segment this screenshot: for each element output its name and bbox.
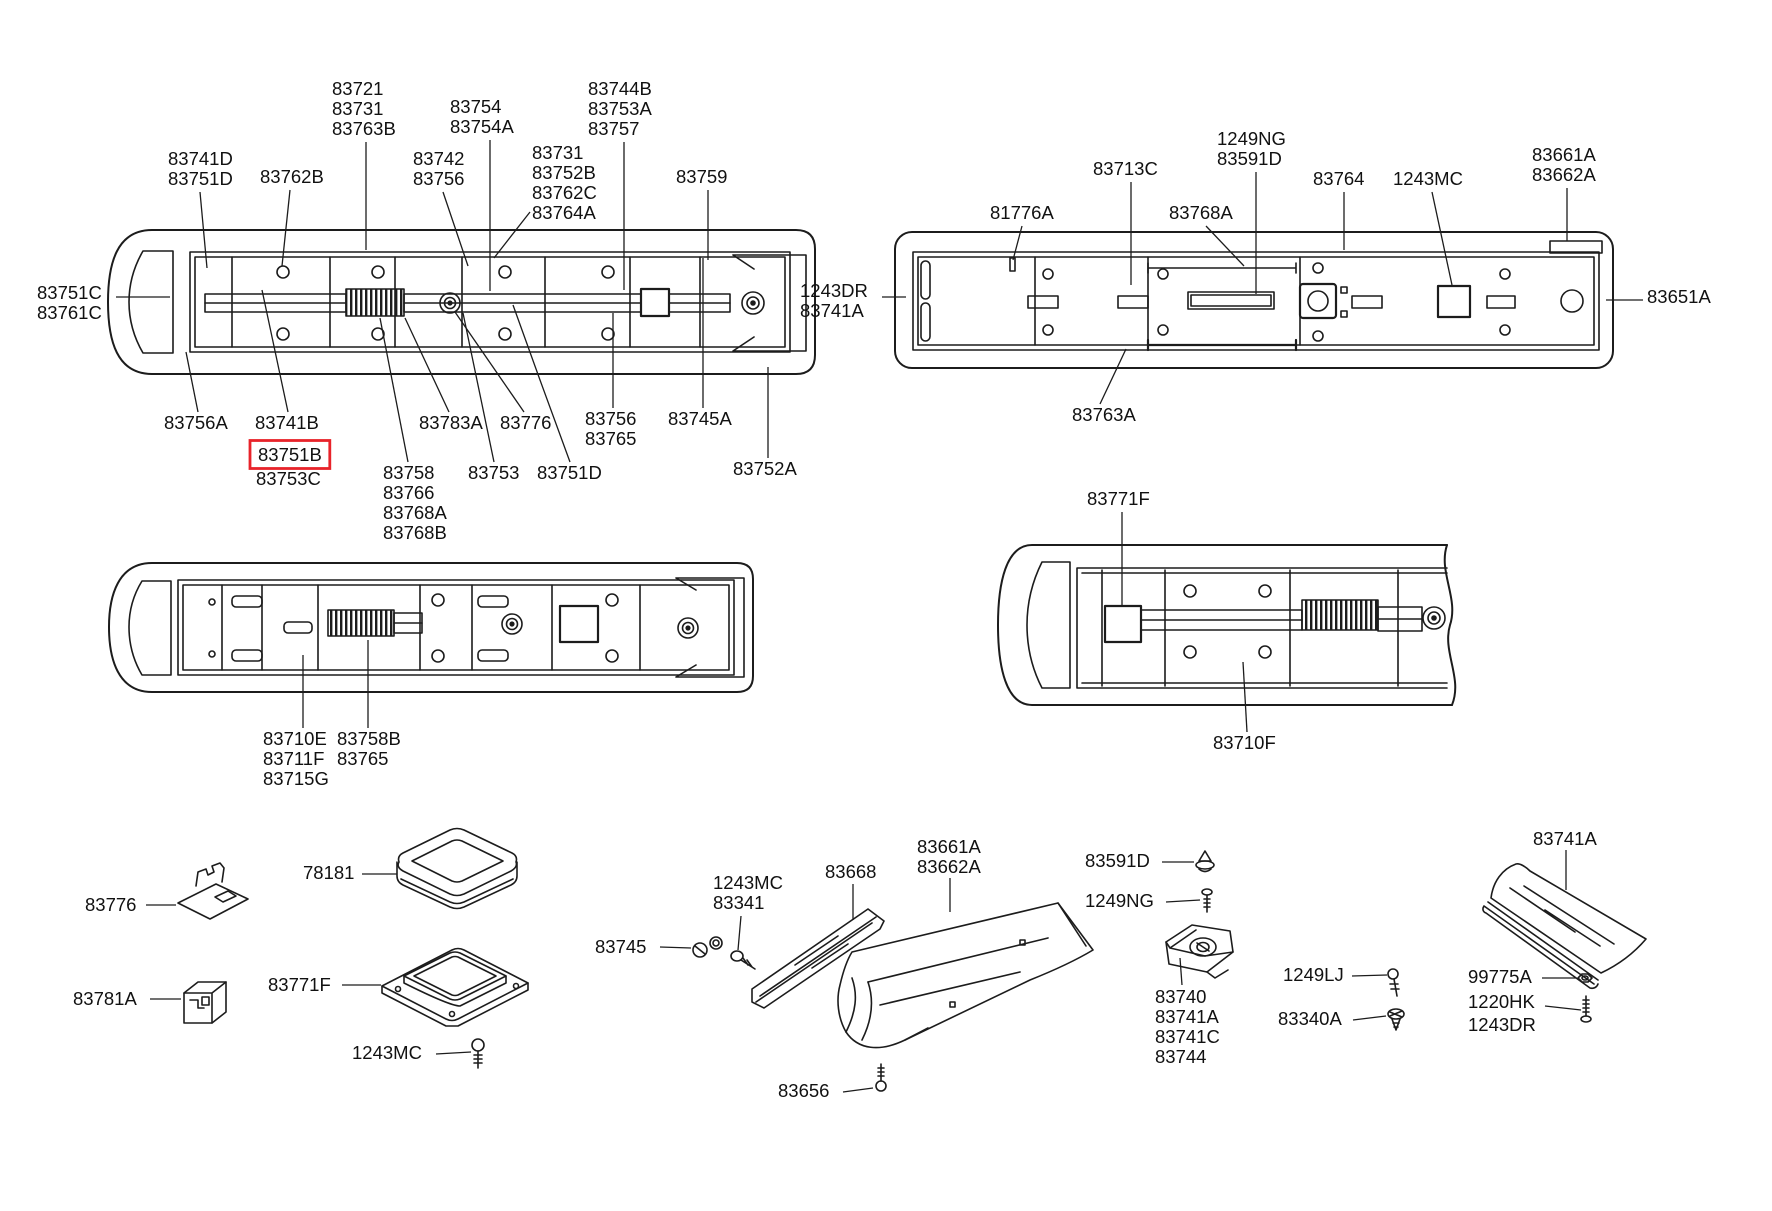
leader-tl-83731-col	[494, 212, 530, 258]
svg-text:1243DR: 1243DR	[1468, 1014, 1536, 1035]
leader-b-1243mc-83341	[738, 916, 741, 950]
part-label-b-83740-col: 8374083741A83741C83744	[1155, 986, 1220, 1067]
part-label-b-83661a-83662a: 83661A83662A	[917, 836, 981, 877]
svg-text:1220HK: 1220HK	[1468, 991, 1536, 1012]
part-1249lj-screw	[1388, 969, 1399, 996]
leader-b-83656	[843, 1088, 873, 1092]
part-label-tl-83741b: 83741B	[255, 412, 319, 433]
part-label-b-83781a: 83781A	[73, 988, 137, 1009]
svg-text:1243MC: 1243MC	[352, 1042, 422, 1063]
part-label-tr-83763a: 83763A	[1072, 404, 1136, 425]
part-label-tl-83753c: 83753C	[256, 468, 321, 489]
svg-text:83651A: 83651A	[1647, 286, 1711, 307]
svg-text:83771F: 83771F	[1087, 488, 1150, 509]
part-83776-bracket	[178, 863, 248, 919]
part-label-tr-83661a-83662a: 83661A83662A	[1532, 144, 1596, 185]
svg-text:83741B: 83741B	[255, 412, 319, 433]
part-label-b-99775a: 99775A	[1468, 966, 1532, 987]
part-label-tl-83753: 83753	[468, 462, 519, 483]
assembly-middle-left-artwork	[109, 563, 753, 692]
part-83745-clips	[693, 937, 722, 957]
part-label-ml-83758b-col: 83758B83765	[337, 728, 401, 769]
svg-text:83776: 83776	[85, 894, 136, 915]
part-label-ml-83710e-col: 83710E83711F83715G	[263, 728, 329, 789]
part-label-mr-83771f: 83771F	[1087, 488, 1150, 509]
svg-text:8374083741A83741C83744: 8374083741A83741C83744	[1155, 986, 1220, 1067]
part-1249ng-screw	[1202, 889, 1212, 912]
part-label-b-83656: 83656	[778, 1080, 829, 1101]
parts-diagram-page: 83741D83751D83762B837218373183763B837548…	[0, 0, 1772, 1211]
part-83341-screw	[731, 951, 755, 969]
part-label-tl-83754-col: 8375483754A	[450, 96, 514, 137]
part-label-b-1249lj: 1249LJ	[1283, 964, 1344, 985]
assembly-top-right-artwork	[895, 232, 1613, 368]
assembly-middle-right-artwork	[998, 545, 1455, 705]
svg-text:83661A83662A: 83661A83662A	[917, 836, 981, 877]
leader-tl-83783a	[405, 318, 449, 412]
part-label-b-1220hk: 1220HK	[1468, 991, 1536, 1012]
assembly-top-left-artwork	[108, 230, 815, 374]
leader-tl-83756a	[186, 352, 198, 412]
part-label-tr-83651a: 83651A	[1647, 286, 1711, 307]
part-label-tl-83756-83765: 8375683765	[585, 408, 636, 449]
svg-text:83661A83662A: 83661A83662A	[1532, 144, 1596, 185]
part-83781a-box	[184, 982, 226, 1023]
part-label-tr-83764: 83764	[1313, 168, 1364, 189]
part-label-b-83668: 83668	[825, 861, 876, 882]
svg-text:83340A: 83340A	[1278, 1008, 1342, 1029]
svg-text:83781A: 83781A	[73, 988, 137, 1009]
svg-text:1249NG: 1249NG	[1085, 890, 1154, 911]
svg-text:78181: 78181	[303, 862, 354, 883]
svg-text:83710E83711F83715G: 83710E83711F83715G	[263, 728, 329, 789]
svg-text:83744B83753A83757: 83744B83753A83757	[588, 78, 652, 139]
part-label-tl-83759: 83759	[676, 166, 727, 187]
svg-text:83710F: 83710F	[1213, 732, 1276, 753]
part-83771f-plate	[382, 949, 528, 1027]
part-1220hk-screw	[1581, 996, 1591, 1022]
part-label-b-83776: 83776	[85, 894, 136, 915]
svg-text:83745: 83745	[595, 936, 646, 957]
part-label-tr-83768a: 83768A	[1169, 202, 1233, 223]
svg-text:83668: 83668	[825, 861, 876, 882]
part-label-b-1249ng: 1249NG	[1085, 890, 1154, 911]
leader-b-1249lj	[1352, 975, 1387, 976]
svg-text:83741D83751D: 83741D83751D	[168, 148, 233, 189]
part-label-b-83771f: 83771F	[268, 974, 331, 995]
part-label-mr-83710f: 83710F	[1213, 732, 1276, 753]
part-label-tl-83731-col: 8373183752B83762C83764A	[532, 142, 597, 223]
svg-text:83768A: 83768A	[1169, 202, 1233, 223]
svg-text:83764: 83764	[1313, 168, 1364, 189]
svg-text:83762B: 83762B	[260, 166, 324, 187]
leader-tl-83762b	[282, 190, 290, 266]
svg-text:83783A: 83783A	[419, 412, 483, 433]
svg-text:99775A: 99775A	[1468, 966, 1532, 987]
leader-b-83340a	[1353, 1016, 1386, 1020]
part-1243mc-screw	[472, 1039, 484, 1068]
leader-b-1243mc	[436, 1052, 471, 1054]
svg-text:83753C: 83753C	[256, 468, 321, 489]
part-label-tl-83742-col: 8374283756	[413, 148, 464, 189]
leader-b-1249ng	[1166, 900, 1200, 902]
part-label-tl-83762b: 83762B	[260, 166, 324, 187]
svg-text:1249NG83591D: 1249NG83591D	[1217, 128, 1286, 169]
svg-text:83752A: 83752A	[733, 458, 797, 479]
part-label-tl-83751d-bot: 83751D	[537, 462, 602, 483]
svg-text:83763A: 83763A	[1072, 404, 1136, 425]
svg-text:8373183752B83762C83764A: 8373183752B83762C83764A	[532, 142, 597, 223]
part-label-tr-1243mc: 1243MC	[1393, 168, 1463, 189]
part-label-tl-83752a: 83752A	[733, 458, 797, 479]
leader-b-83740-col	[1180, 958, 1182, 985]
part-label-tl-83776: 83776	[500, 412, 551, 433]
part-label-b-83340a: 83340A	[1278, 1008, 1342, 1029]
leader-tr-83763a	[1100, 349, 1126, 404]
svg-text:83753: 83753	[468, 462, 519, 483]
svg-text:83756A: 83756A	[164, 412, 228, 433]
part-label-tl-83756a: 83756A	[164, 412, 228, 433]
leader-b-1220hk	[1545, 1006, 1581, 1010]
svg-text:1243MC83341: 1243MC83341	[713, 872, 783, 913]
part-label-b-78181: 78181	[303, 862, 354, 883]
svg-text:1249LJ: 1249LJ	[1283, 964, 1344, 985]
part-83656-screw	[876, 1064, 886, 1091]
svg-text:837218373183763B: 837218373183763B	[332, 78, 396, 139]
part-label-b-83745: 83745	[595, 936, 646, 957]
part-83661a-cover	[838, 903, 1093, 1048]
svg-text:83656: 83656	[778, 1080, 829, 1101]
part-label-b-1243dr: 1243DR	[1468, 1014, 1536, 1035]
part-label-tl-83751b: 83751B	[250, 441, 330, 469]
part-83340a-clip	[1388, 1009, 1404, 1030]
svg-text:83741A: 83741A	[1533, 828, 1597, 849]
svg-text:8374283756: 8374283756	[413, 148, 464, 189]
svg-text:83591D: 83591D	[1085, 850, 1150, 871]
part-label-tr-83713c: 83713C	[1093, 158, 1158, 179]
svg-text:83745A: 83745A	[668, 408, 732, 429]
part-label-b-83741a: 83741A	[1533, 828, 1597, 849]
part-label-tl-83751c-83761c: 83751C83761C	[37, 282, 102, 323]
leader-tl-83741b	[262, 290, 288, 412]
part-label-b-1243mc: 1243MC	[352, 1042, 422, 1063]
svg-text:8375683765: 8375683765	[585, 408, 636, 449]
svg-text:83758B83765: 83758B83765	[337, 728, 401, 769]
svg-text:837588376683768A83768B: 837588376683768A83768B	[383, 462, 447, 543]
svg-text:1243MC: 1243MC	[1393, 168, 1463, 189]
part-label-tr-81776a: 81776A	[990, 202, 1054, 223]
part-label-tl-83744b-col: 83744B83753A83757	[588, 78, 652, 139]
leader-tl-83758-col	[380, 318, 408, 462]
svg-text:83771F: 83771F	[268, 974, 331, 995]
svg-text:8375483754A: 8375483754A	[450, 96, 514, 137]
leader-b-83745	[660, 947, 691, 948]
part-label-tl-83721-col: 837218373183763B	[332, 78, 396, 139]
part-label-tr-1243dr-83741a: 1243DR83741A	[800, 280, 868, 321]
leader-mr-83710f	[1243, 662, 1247, 732]
svg-text:83713C: 83713C	[1093, 158, 1158, 179]
leader-tl-83753	[463, 313, 494, 462]
part-label-b-83591d: 83591D	[1085, 850, 1150, 871]
leader-tr-1243mc	[1432, 192, 1452, 285]
leader-tl-83751d-bot	[513, 305, 570, 462]
part-83668-rail	[752, 909, 884, 1008]
svg-text:81776A: 81776A	[990, 202, 1054, 223]
part-label-tl-83745a: 83745A	[668, 408, 732, 429]
svg-text:83751C83761C: 83751C83761C	[37, 282, 102, 323]
svg-text:1243DR83741A: 1243DR83741A	[800, 280, 868, 321]
diagram-canvas: 83741D83751D83762B837218373183763B837548…	[0, 0, 1772, 1211]
svg-text:83759: 83759	[676, 166, 727, 187]
part-label-tl-83783a: 83783A	[419, 412, 483, 433]
svg-text:83751D: 83751D	[537, 462, 602, 483]
part-78181-gasket	[397, 829, 517, 909]
part-label-b-1243mc-83341: 1243MC83341	[713, 872, 783, 913]
svg-text:83751B: 83751B	[258, 444, 322, 465]
svg-text:83776: 83776	[500, 412, 551, 433]
part-label-tr-1249ng-83591d: 1249NG83591D	[1217, 128, 1286, 169]
part-label-tl-83758-col: 837588376683768A83768B	[383, 462, 447, 543]
part-83740-bracket	[1166, 925, 1233, 978]
part-label-tl-83741d-83751d: 83741D83751D	[168, 148, 233, 189]
part-83591d-clip	[1196, 851, 1214, 872]
